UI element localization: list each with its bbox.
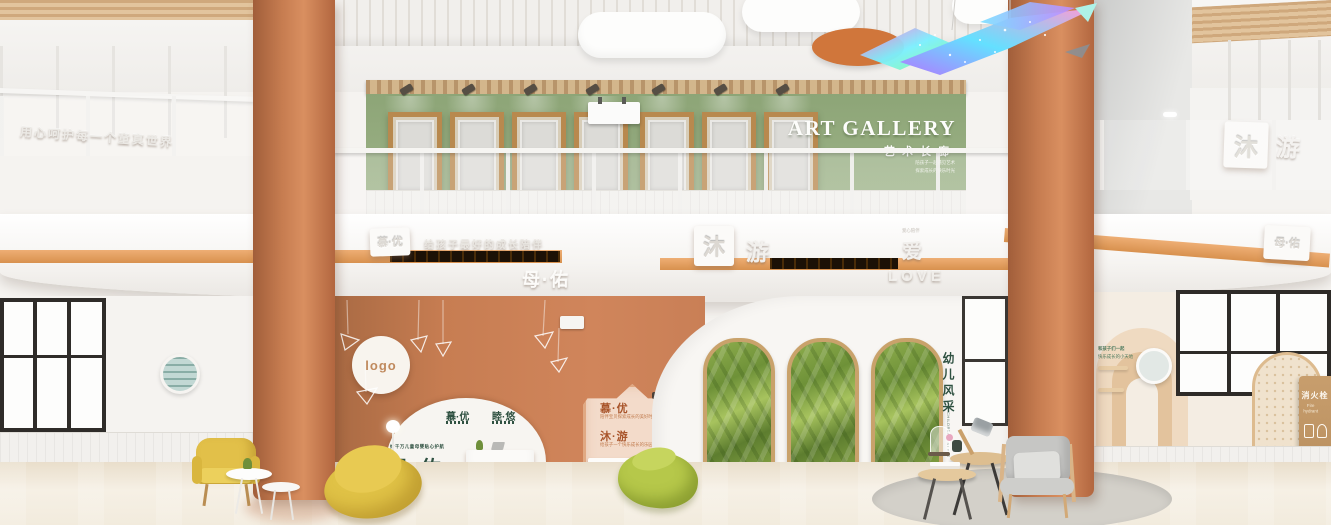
left-fascia-badge: 慕·优 bbox=[370, 227, 411, 256]
nesting-table-small-top bbox=[918, 468, 976, 481]
window-left bbox=[0, 298, 106, 432]
fascia-slot-left bbox=[390, 251, 560, 262]
gallery-plaque bbox=[588, 102, 640, 124]
ceiling-wood-left bbox=[0, 0, 256, 20]
window-mullion bbox=[67, 302, 71, 428]
left-fascia-embossed: 给孩子最好的成长陪伴 bbox=[424, 236, 544, 251]
reception-tagline: 给千万儿童母婴贴心护航 bbox=[390, 444, 484, 450]
window-mid-right bbox=[962, 296, 1008, 426]
porthole-right bbox=[1136, 348, 1172, 384]
holographic-plane-sculpture bbox=[860, 0, 1130, 100]
left-fascia-badge-text: 慕·优 bbox=[377, 234, 403, 251]
plaque-clip-icon bbox=[598, 97, 602, 104]
love-char: 爱 bbox=[902, 235, 922, 264]
window-mullion bbox=[1180, 351, 1327, 354]
fire-hose-icon bbox=[1317, 424, 1327, 438]
side-table-white bbox=[262, 482, 300, 492]
vertical-sign-title: 幼儿风采 bbox=[940, 352, 957, 416]
beam-brand-text: 母·佑 bbox=[522, 266, 570, 292]
arch-brand-left-rule bbox=[446, 421, 470, 424]
center-sign-char: 游 bbox=[746, 233, 769, 267]
table-plant-icon bbox=[243, 458, 252, 469]
column-left bbox=[253, 0, 335, 500]
bell-jar-base bbox=[928, 452, 950, 456]
wall-shelf-icon bbox=[1098, 366, 1128, 370]
fire-sign-title: 消火栓 bbox=[1299, 390, 1331, 401]
window-mullion bbox=[4, 355, 102, 358]
deco-pot-icon bbox=[952, 440, 962, 452]
window-mullion bbox=[33, 302, 37, 428]
desk-plant-icon bbox=[476, 440, 483, 450]
cloud-cutout-1 bbox=[578, 12, 726, 58]
mezzanine-right-windows bbox=[1228, 40, 1331, 120]
armchair-grey-seat bbox=[1000, 478, 1074, 495]
porthole-left bbox=[160, 354, 200, 394]
wall-lamp-dot bbox=[1163, 112, 1177, 117]
balustrade-glass bbox=[334, 150, 1014, 216]
art-gallery-title: ART GALLERY bbox=[786, 116, 956, 141]
fire-sign-sub: Fire hydrant bbox=[1303, 403, 1318, 414]
window-mullion bbox=[1227, 294, 1231, 392]
arch-brand-right-rule bbox=[492, 421, 516, 424]
lobby-scene: 沐 游 ART GALLERY 艺术长廊 陪孩子一起遇见艺术 探索成长的快乐时光… bbox=[0, 0, 1331, 525]
love-word: LOVE bbox=[888, 268, 945, 285]
center-sign-tile: 沐 bbox=[694, 226, 734, 266]
flower-icon bbox=[946, 434, 953, 441]
right-wall-caption1: 和孩子们一起 bbox=[1098, 346, 1124, 352]
fire-extinguisher-icon bbox=[1304, 424, 1314, 438]
fascia-slot-center bbox=[770, 258, 898, 269]
floor-lamp-shade bbox=[386, 420, 400, 433]
armchair-yellow-arm bbox=[192, 456, 202, 484]
plaque-clip-icon bbox=[622, 97, 626, 104]
love-char-caption: 爱心陪伴 bbox=[902, 228, 920, 234]
wall-plaque-small bbox=[560, 316, 584, 329]
side-table-white bbox=[226, 468, 272, 480]
right-wall-caption2: 快乐成长的小天地 bbox=[1098, 354, 1133, 360]
right-fascia-badge: 母·佑 bbox=[1263, 225, 1311, 261]
table-books-icon bbox=[930, 462, 960, 466]
window-mullion bbox=[965, 359, 1005, 362]
balustrade-handrail bbox=[334, 148, 1014, 153]
desk-laptop-icon bbox=[491, 442, 505, 450]
right-fascia-badge-text: 母·佑 bbox=[1274, 234, 1300, 251]
cloud-cutout-2 bbox=[742, 0, 860, 32]
wall-shelf-icon bbox=[1098, 388, 1124, 392]
center-sign-tile-char: 沐 bbox=[703, 230, 725, 262]
ceiling-wood-right bbox=[1188, 0, 1331, 43]
